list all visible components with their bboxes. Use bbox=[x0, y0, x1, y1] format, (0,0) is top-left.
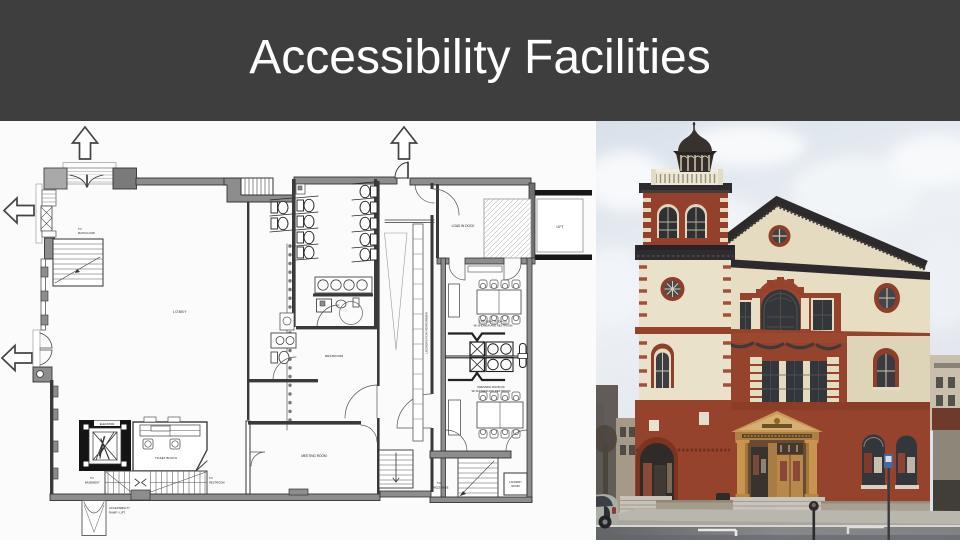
svg-text:W/ SHOWER AND RESTROOM: W/ SHOWER AND RESTROOM bbox=[474, 324, 513, 328]
svg-text:TO: TO bbox=[90, 476, 94, 480]
svg-text:RAMP / LIFT: RAMP / LIFT bbox=[109, 511, 125, 515]
svg-text:BASEMENT: BASEMENT bbox=[85, 481, 100, 485]
svg-text:TO: TO bbox=[209, 476, 213, 480]
svg-text:RESTROOM: RESTROOM bbox=[325, 354, 343, 358]
svg-text:MAIN FLOOR: MAIN FLOOR bbox=[78, 231, 95, 235]
svg-text:TICKET BOOTH: TICKET BOOTH bbox=[155, 456, 177, 460]
svg-text:LOCKERS FOR PERFORMER: LOCKERS FOR PERFORMER bbox=[425, 311, 429, 353]
svg-text:LOAD IN DOCK: LOAD IN DOCK bbox=[452, 224, 476, 228]
svg-text:LOBBY: LOBBY bbox=[173, 310, 187, 314]
svg-text:MEETING ROOM: MEETING ROOM bbox=[301, 454, 327, 458]
svg-text:ROOM: ROOM bbox=[511, 484, 520, 488]
svg-text:LAUNDRY: LAUNDRY bbox=[509, 480, 522, 484]
svg-text:ELEVATOR: ELEVATOR bbox=[100, 422, 114, 426]
svg-text:TO: TO bbox=[437, 481, 441, 485]
svg-text:TO: TO bbox=[78, 227, 82, 231]
svg-text:MEZZANINE: MEZZANINE bbox=[433, 486, 449, 490]
svg-text:RESTROOM: RESTROOM bbox=[209, 481, 225, 485]
svg-text:DRESSING ROOM (8): DRESSING ROOM (8) bbox=[477, 385, 504, 389]
svg-text:ACCESSIBILITY: ACCESSIBILITY bbox=[109, 506, 130, 510]
svg-text:DRESSING ROOM (8): DRESSING ROOM (8) bbox=[479, 320, 506, 324]
svg-text:LIFT: LIFT bbox=[557, 225, 564, 229]
